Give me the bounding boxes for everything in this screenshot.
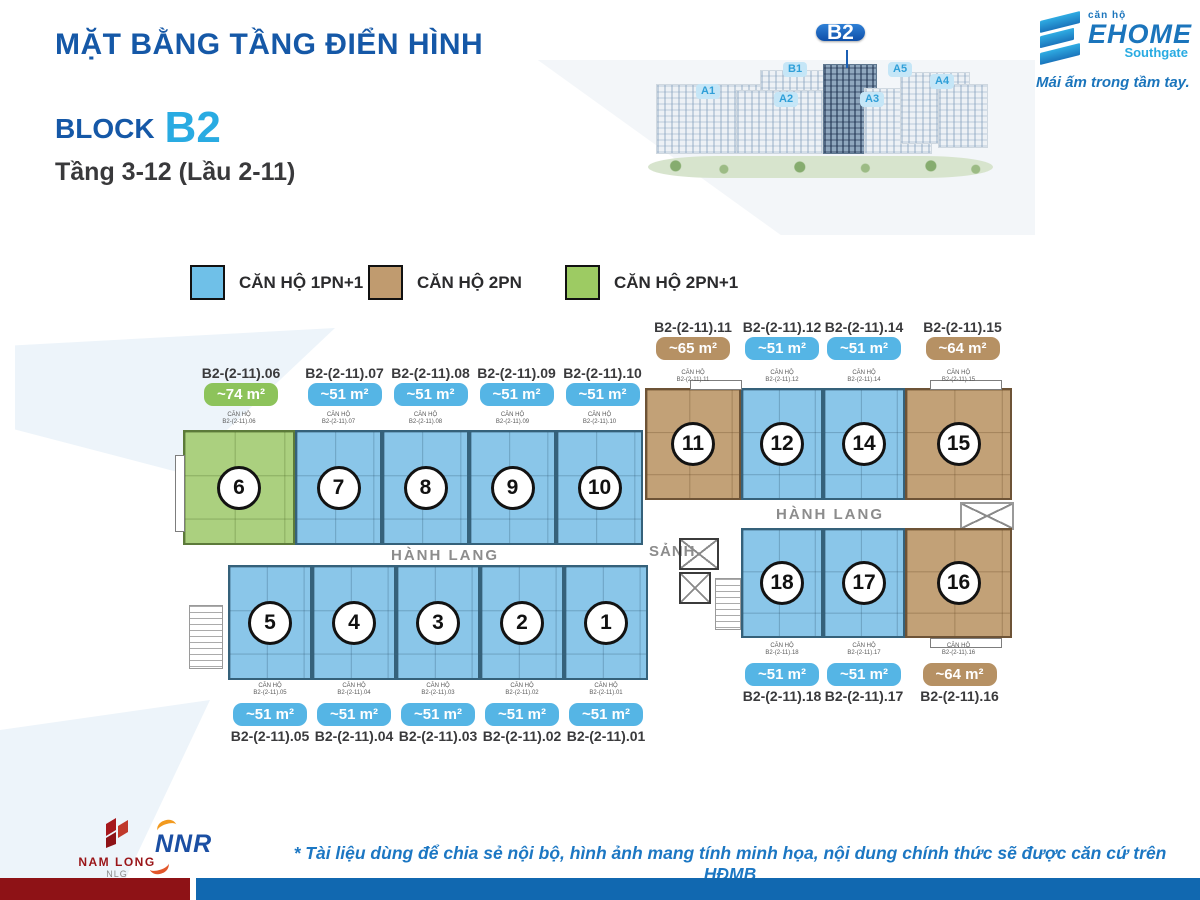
area-badge: ~64 m² (923, 663, 997, 686)
label-unit-07: B2-(2-11).07 ~51 m² (301, 363, 388, 406)
elevator-shaft (679, 572, 711, 604)
floor-plan: B2-(2-11).11 ~65 m² B2-(2-11).12 ~51 m² … (175, 315, 1020, 767)
area-badge: ~51 m² (745, 663, 819, 686)
area-badge: ~51 m² (745, 337, 819, 360)
namlong-mark-icon (100, 818, 134, 848)
unit-number: 2 (500, 601, 544, 645)
unit-caption: CĂN HỘB2-(2-11).05 (228, 683, 312, 697)
unit-caption: CĂN HỘB2-(2-11).11 (645, 370, 741, 384)
unit-caption: CĂN HỘB2-(2-11).09 (469, 412, 556, 426)
b2-pointer-line (846, 50, 848, 68)
unit-number: 5 (248, 601, 292, 645)
label-unit-10: B2-(2-11).10 ~51 m² (559, 363, 646, 406)
tower-label-b2: B2 (816, 24, 865, 41)
label-unit-06: B2-(2-11).06 ~74 m² (185, 363, 297, 406)
unit-number: 11 (671, 422, 715, 466)
site-ground (648, 156, 993, 178)
label-unit-14: B2-(2-11).14 ~51 m² (823, 317, 905, 360)
area-badge: ~51 m² (827, 337, 901, 360)
tower-label-a3: A3 (860, 92, 884, 107)
label-unit-15: B2-(2-11).15 ~64 m² (910, 317, 1015, 360)
unit-10: 10 (556, 430, 643, 545)
unit-number: 6 (217, 466, 261, 510)
unit-18: 18 (741, 528, 823, 638)
block-heading: BLOCKB2 (55, 103, 221, 153)
unit-caption: CĂN HỘB2-(2-11).10 (556, 412, 643, 426)
label-unit-11: B2-(2-11).11 ~65 m² (643, 317, 743, 360)
tower-label-a2: A2 (774, 92, 798, 107)
area-badge: ~51 m² (394, 383, 468, 406)
corridor-void (960, 502, 1014, 530)
area-badge: ~74 m² (204, 383, 278, 406)
elevator-shaft (679, 538, 719, 570)
legend-item-2pn1: CĂN HỘ 2PN+1 (565, 265, 738, 300)
label-unit-16: ~64 m² B2-(2-11).16 (907, 663, 1012, 706)
area-badge: ~51 m² (401, 703, 475, 726)
unit-number: 7 (317, 466, 361, 510)
floor-range: Tầng 3-12 (Lầu 2-11) (55, 158, 295, 187)
unit-caption: CĂN HỘB2-(2-11).01 (564, 683, 648, 697)
area-badge: ~51 m² (317, 703, 391, 726)
unit-number: 16 (937, 561, 981, 605)
unit-caption: CĂN HỘB2-(2-11).18 (741, 643, 823, 657)
tower-label-a1: A1 (696, 84, 720, 99)
block-label: BLOCK (55, 113, 155, 144)
unit-caption: CĂN HỘB2-(2-11).07 (295, 412, 382, 426)
ehome-tagline: Mái ấm trong tầm tay. (1036, 74, 1196, 91)
stairwell-left (189, 605, 223, 669)
label-unit-02: ~51 m² B2-(2-11).02 (474, 703, 570, 746)
unit-caption: CĂN HỘB2-(2-11).06 (183, 412, 295, 426)
label-unit-09: B2-(2-11).09 ~51 m² (473, 363, 560, 406)
unit-14: 14 (823, 388, 905, 500)
nnr-logo: NNR (155, 830, 235, 859)
ehome-building-icon (1040, 16, 1084, 68)
legend-item-1pn1: CĂN HỘ 1PN+1 (190, 265, 363, 300)
unit-number: 8 (404, 466, 448, 510)
unit-number: 4 (332, 601, 376, 645)
block-value: B2 (165, 103, 221, 152)
unit-number: 10 (578, 466, 622, 510)
area-badge: ~51 m² (485, 703, 559, 726)
area-badge: ~51 m² (308, 383, 382, 406)
area-badge: ~64 m² (926, 337, 1000, 360)
footer-bar-red (0, 878, 190, 900)
area-badge: ~51 m² (569, 703, 643, 726)
ehome-name: EHOME (1088, 21, 1188, 47)
label-unit-17: ~51 m² B2-(2-11).17 (823, 663, 905, 706)
unit-caption: CĂN HỘB2-(2-11).15 (905, 370, 1012, 384)
unit-caption: CĂN HỘB2-(2-11).02 (480, 683, 564, 697)
stairwell-lobby (715, 578, 741, 630)
unit-02: 2 (480, 565, 564, 680)
unit-08: 8 (382, 430, 469, 545)
unit-17: 17 (823, 528, 905, 638)
unit-number: 18 (760, 561, 804, 605)
tower-a4-building (938, 84, 988, 148)
balcony (175, 455, 185, 532)
unit-05: 5 (228, 565, 312, 680)
unit-07: 7 (295, 430, 382, 545)
unit-caption: CĂN HỘB2-(2-11).12 (741, 370, 823, 384)
footer-bar-blue (196, 878, 1200, 900)
area-badge: ~51 m² (566, 383, 640, 406)
label-unit-04: ~51 m² B2-(2-11).04 (306, 703, 402, 746)
unit-number: 14 (842, 422, 886, 466)
unit-caption: CĂN HỘB2-(2-11).03 (396, 683, 480, 697)
unit-number: 15 (937, 422, 981, 466)
unit-04: 4 (312, 565, 396, 680)
label-unit-01: ~51 m² B2-(2-11).01 (558, 703, 654, 746)
unit-caption: CĂN HỘB2-(2-11).17 (823, 643, 905, 657)
area-badge: ~51 m² (233, 703, 307, 726)
unit-09: 9 (469, 430, 556, 545)
label-unit-18: ~51 m² B2-(2-11).18 (741, 663, 823, 706)
unit-11: 11 (645, 388, 741, 500)
unit-number: 12 (760, 422, 804, 466)
unit-16: 16 (905, 528, 1012, 638)
legend-swatch-brown (368, 265, 403, 300)
unit-caption: CĂN HỘB2-(2-11).14 (823, 370, 905, 384)
label-unit-05: ~51 m² B2-(2-11).05 (222, 703, 318, 746)
unit-01: 1 (564, 565, 648, 680)
corridor-right: HÀNH LANG (730, 500, 930, 528)
unit-number: 3 (416, 601, 460, 645)
unit-06: 6 (183, 430, 295, 545)
page-title: MẶT BẰNG TẦNG ĐIỂN HÌNH (55, 28, 483, 62)
unit-15: 15 (905, 388, 1012, 500)
label-unit-12: B2-(2-11).12 ~51 m² (741, 317, 823, 360)
unit-number: 17 (842, 561, 886, 605)
corridor-left: HÀNH LANG (295, 545, 595, 565)
tower-label-a4: A4 (930, 74, 954, 89)
site-map: A1 B1 A2 B2 A3 A5 A4 (648, 22, 993, 180)
area-badge: ~51 m² (827, 663, 901, 686)
unit-12: 12 (741, 388, 823, 500)
label-unit-03: ~51 m² B2-(2-11).03 (390, 703, 486, 746)
unit-caption: CĂN HỘB2-(2-11).04 (312, 683, 396, 697)
legend-swatch-blue (190, 265, 225, 300)
unit-03: 3 (396, 565, 480, 680)
label-unit-08: B2-(2-11).08 ~51 m² (387, 363, 474, 406)
area-badge: ~51 m² (480, 383, 554, 406)
tower-label-a5: A5 (888, 62, 912, 77)
legend-item-2pn: CĂN HỘ 2PN (368, 265, 522, 300)
unit-caption: CĂN HỘB2-(2-11).08 (382, 412, 469, 426)
unit-number: 9 (491, 466, 535, 510)
area-badge: ~65 m² (656, 337, 730, 360)
legend-swatch-green (565, 265, 600, 300)
unit-caption: CĂN HỘB2-(2-11).16 (905, 643, 1012, 657)
unit-number: 1 (584, 601, 628, 645)
tower-label-b1: B1 (783, 62, 807, 77)
